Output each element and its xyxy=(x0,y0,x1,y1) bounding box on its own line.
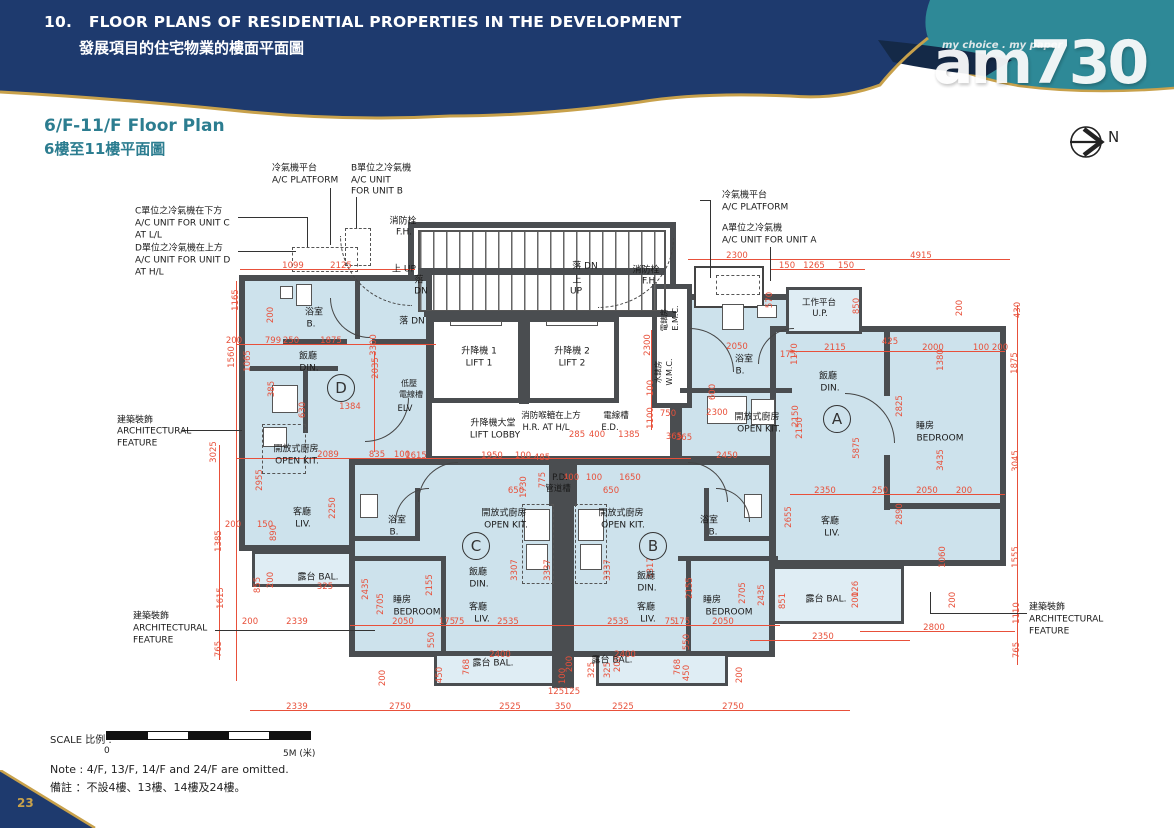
dimension-text: 1385 xyxy=(215,530,224,552)
dimension-text: 200 xyxy=(226,337,242,346)
dimension-text: 1875 xyxy=(1011,352,1020,374)
plan-label: DIN. xyxy=(469,581,488,590)
dimension-text: 350 xyxy=(555,703,571,712)
dimension-text: 150 xyxy=(257,521,273,530)
dimension-text: 430 xyxy=(1014,302,1023,318)
dimension-text: 200 xyxy=(949,592,958,608)
plan-label: 浴室 xyxy=(735,356,753,365)
leader-line xyxy=(700,200,711,201)
dimension-text: 2535 xyxy=(497,618,519,627)
page: 10. FLOOR PLANS OF RESIDENTIAL PROPERTIE… xyxy=(0,0,1174,828)
dimension-text: 2955 xyxy=(256,469,265,491)
scale-bar xyxy=(106,731,311,740)
plan-label: OPEN KIT. xyxy=(601,522,645,531)
plan-label: 建築裝飾 xyxy=(1029,604,1065,613)
dimension-text: 1099 xyxy=(282,262,304,271)
plan-label: 睡房 xyxy=(916,423,934,432)
dimension-text: 3300 xyxy=(370,334,379,356)
plan-label: A/C PLATFORM xyxy=(722,204,788,213)
scale-bar-segment xyxy=(107,732,148,739)
dimension-text: 2525 xyxy=(499,703,521,712)
dimension-text: 450 xyxy=(436,667,445,683)
dimension-line xyxy=(219,445,220,660)
dimension-text: 1950 xyxy=(481,452,503,461)
dimension-text: 2300 xyxy=(726,252,748,261)
dimension-text: 5875 xyxy=(853,437,862,459)
plan-label: LIFT 2 xyxy=(559,360,586,369)
dimension-text: 125 xyxy=(548,688,564,697)
dimension-text: 2300 xyxy=(706,409,728,418)
plan-label: A/C PLATFORM xyxy=(272,177,338,186)
dimension-text: 2435 xyxy=(362,578,371,600)
scale-bar-segment xyxy=(229,732,270,739)
plan-label: 睡房 xyxy=(393,597,411,606)
dimension-text: 765 xyxy=(215,641,224,657)
plan-label: LIV. xyxy=(640,616,656,625)
scale-bar-segment xyxy=(148,732,189,739)
plan-label: 電錶房 xyxy=(660,309,668,332)
plan-label: E.M.C. xyxy=(672,305,680,330)
plan-label: ARCHITECTURAL xyxy=(133,625,207,634)
dimension-text: 200 xyxy=(242,618,258,627)
leader-line xyxy=(356,197,357,228)
wall-segment xyxy=(250,366,338,371)
plan-label: BEDROOM xyxy=(917,435,964,444)
dimension-text: 200 xyxy=(852,592,861,608)
fixture xyxy=(280,286,293,299)
dimension-text: 485 xyxy=(534,454,550,463)
plan-label: 露台 BAL. xyxy=(805,596,846,605)
dimension-text: 2155 xyxy=(686,577,695,599)
plan-label: 建築裝飾 xyxy=(117,417,153,426)
dimension-text: 2050 xyxy=(712,618,734,627)
plan-label: 冷氣機平台 xyxy=(722,192,767,201)
plan-label: 開放式廚房 xyxy=(481,510,526,519)
plan-label: DIN. xyxy=(820,385,839,394)
dimension-line xyxy=(250,710,850,711)
dimension-text: 570 xyxy=(766,292,775,308)
dimension-text: 550 xyxy=(428,632,437,648)
plan-label: F.H. xyxy=(642,278,658,287)
plan-label: 消防栓 xyxy=(389,218,416,227)
dimension-text: 2350 xyxy=(812,633,834,642)
plan-label: 客廳 xyxy=(821,518,839,527)
dimension-text: 750 xyxy=(660,410,676,419)
dimension-text: 3337 xyxy=(604,559,613,581)
dimension-text: 100 xyxy=(586,474,602,483)
plan-label: 飯廳 xyxy=(819,373,837,382)
dimension-text: 325 xyxy=(317,583,333,592)
dimension-text: 550 xyxy=(683,634,692,650)
dimension-text: 2750 xyxy=(389,703,411,712)
scale-start: 0 xyxy=(104,746,110,756)
plan-label: 浴室 xyxy=(305,309,323,318)
dimension-text: 768 xyxy=(463,659,472,675)
dimension-text: 850 xyxy=(853,298,862,314)
plan-label: ARCHITECTURAL xyxy=(117,428,191,437)
dimension-text: 1650 xyxy=(619,474,641,483)
plan-label: 電線槽 xyxy=(603,412,629,421)
dimension-text: 2150 xyxy=(796,417,805,439)
dimension-text: 835 xyxy=(369,451,385,460)
plan-label: 上 UP xyxy=(392,266,416,275)
dimension-text: 2300 xyxy=(644,334,653,356)
plan-label: OPEN KIT. xyxy=(484,522,528,531)
dimension-text: 1100 xyxy=(647,407,656,429)
scale-bar-segment xyxy=(269,732,310,739)
plan-label: FEATURE xyxy=(117,440,157,449)
plan-label: UP xyxy=(570,288,582,297)
leader-line xyxy=(238,251,296,252)
dimension-text: 200 xyxy=(956,487,972,496)
dimension-text: 2339 xyxy=(286,618,308,627)
wall-segment xyxy=(441,560,446,655)
dimension-text: 4915 xyxy=(910,252,932,261)
dimension-text: 768 xyxy=(674,659,683,675)
leader-line xyxy=(770,247,771,281)
plan-label: B單位之冷氣機 xyxy=(351,165,411,174)
dimension-text: 365 xyxy=(666,433,682,442)
plan-label: W.M.C. xyxy=(666,358,674,385)
dimension-text: 200 xyxy=(566,656,575,672)
dimension-text: 200 xyxy=(956,300,965,316)
plan-label: B. xyxy=(708,529,717,538)
dimension-text: 1560 xyxy=(228,346,237,368)
plan-label: LIFT LOBBY xyxy=(470,432,520,441)
dimension-text: 285 xyxy=(569,431,585,440)
dimension-text: 630 xyxy=(299,402,308,418)
dimension-text: 200 xyxy=(736,667,745,683)
page-number: 23 xyxy=(17,796,34,810)
wall-segment xyxy=(678,556,778,561)
dimension-text: 851 xyxy=(779,593,788,609)
plan-label: 消防栓 xyxy=(632,267,659,276)
dimension-text: 2535 xyxy=(607,618,629,627)
dimension-text: 855 xyxy=(254,577,263,593)
dimension-text: 2339 xyxy=(286,703,308,712)
plan-label: 露台 BAL. xyxy=(297,574,338,583)
plan-label: LIV. xyxy=(474,616,490,625)
dimension-text: 2155 xyxy=(426,574,435,596)
wall-segment xyxy=(352,536,420,541)
dimension-text: 75 xyxy=(454,618,465,627)
dimension-text: 425 xyxy=(882,338,898,347)
plan-label: 客廳 xyxy=(637,604,655,613)
plan-label: P.D. xyxy=(552,474,568,483)
leader-line xyxy=(215,630,375,631)
plan-label: 低壓 xyxy=(401,380,417,388)
dimension-text: 1875 xyxy=(320,337,342,346)
unit-badge-d: D xyxy=(327,374,355,402)
dimension-text: 2050 xyxy=(916,487,938,496)
dimension-text: 200 xyxy=(379,670,388,686)
leader-line xyxy=(710,200,711,278)
plan-label: ELV xyxy=(398,405,413,414)
plan-label: 露台 BAL. xyxy=(591,657,632,666)
dimension-text: 2125 xyxy=(330,262,352,271)
plan-label: LIV. xyxy=(824,530,840,539)
plan-label: LIV. xyxy=(295,521,311,530)
fixture xyxy=(450,321,502,326)
dimension-text: 2115 xyxy=(824,344,846,353)
leader-line xyxy=(330,188,331,245)
plan-label: 客廳 xyxy=(469,604,487,613)
fixture xyxy=(296,284,312,306)
wall-segment xyxy=(424,311,676,317)
plan-label: 水錶房 xyxy=(654,361,662,384)
plan-label: 建築裝飾 xyxy=(133,613,169,622)
ac-unit-dashed-box xyxy=(716,275,760,295)
wall-segment xyxy=(349,556,446,561)
dimension-text: 150 xyxy=(779,262,795,271)
dimension-text: 1615 xyxy=(217,587,226,609)
plan-label: DN xyxy=(414,288,428,297)
plan-label: E.D. xyxy=(601,424,618,433)
plan-label: 睡房 xyxy=(703,597,721,606)
plan-label: B. xyxy=(306,321,315,330)
dimension-text: 2050 xyxy=(392,618,414,627)
plan-label: A/C UNIT FOR UNIT A xyxy=(722,237,817,246)
plan-label: 開放式廚房 xyxy=(598,510,643,519)
scale-bar-segment xyxy=(188,732,229,739)
unit-badge-b: B xyxy=(639,532,667,560)
plan-label: A/C UNIT xyxy=(351,177,391,186)
scale-label: SCALE 比例 : xyxy=(50,731,112,746)
leader-line xyxy=(307,217,308,247)
dimension-text: 1384 xyxy=(339,403,361,412)
dimension-text: 1555 xyxy=(1012,546,1021,568)
plan-label: 浴室 xyxy=(388,517,406,526)
plan-label: 飯廳 xyxy=(637,573,655,582)
dimension-text: 2450 xyxy=(716,452,738,461)
dimension-text: 100 xyxy=(973,344,989,353)
plan-label: 飯廳 xyxy=(299,353,317,362)
plan-label: 升降機大堂 xyxy=(470,420,515,429)
dimension-text: 1380 xyxy=(937,349,946,371)
dimension-text: 200 xyxy=(225,521,241,530)
fixture xyxy=(580,544,602,570)
floor-plan: 1099212523004915150126515057085020011651… xyxy=(0,0,1174,828)
plan-label: C單位之冷氣機在下方 xyxy=(135,208,222,217)
unit-badge-c: C xyxy=(462,532,490,560)
dimension-text: 650 xyxy=(603,487,619,496)
plan-label: B. xyxy=(735,368,744,377)
plan-label: 電線槽 xyxy=(399,391,423,399)
plan-label: H.R. AT H/L xyxy=(523,424,570,433)
dimension-text: 1165 xyxy=(232,289,241,311)
plan-label: DIN. xyxy=(637,585,656,594)
plan-label: OPEN KIT. xyxy=(737,426,781,435)
dimension-text: 2035 xyxy=(372,357,381,379)
dimension-text: 1615 xyxy=(405,452,427,461)
leader-line xyxy=(930,592,931,614)
plan-label: BEDROOM xyxy=(394,609,441,618)
plan-label: 露台 BAL. xyxy=(472,660,513,669)
dimension-text: 250 xyxy=(872,487,888,496)
plan-label: FOR UNIT B xyxy=(351,188,403,197)
plan-label: B. xyxy=(389,529,398,538)
dimension-text: 200 xyxy=(992,344,1008,353)
plan-label: AT H/L xyxy=(135,269,164,278)
plan-label: 升降機 1 xyxy=(461,348,497,357)
plan-label: BEDROOM xyxy=(706,609,753,618)
dimension-text: 450 xyxy=(683,665,692,681)
dimension-text: 2655 xyxy=(785,506,794,528)
dimension-text: 1265 xyxy=(803,262,825,271)
plan-label: 上 xyxy=(572,277,581,286)
fixture xyxy=(524,509,550,541)
plan-label: A單位之冷氣機 xyxy=(722,225,782,234)
plan-label: U.P. xyxy=(812,310,827,319)
dimension-text: 2050 xyxy=(726,343,748,352)
plan-label: LIFT 1 xyxy=(466,360,493,369)
dimension-text: 2825 xyxy=(896,395,905,417)
plan-label: 浴室 xyxy=(700,517,718,526)
dimension-text: 765 xyxy=(1013,642,1022,658)
dimension-text: 1730 xyxy=(520,476,529,498)
plan-label: 冷氣機平台 xyxy=(272,165,317,174)
dimension-text: 3307 xyxy=(511,559,520,581)
dimension-text: 385 xyxy=(268,381,277,397)
dimension-text: 2750 xyxy=(722,703,744,712)
plan-label: FEATURE xyxy=(1029,628,1069,637)
plan-label: DIN. xyxy=(299,365,318,374)
dimension-text: 250 xyxy=(283,337,299,346)
dimension-text: 3045 xyxy=(1012,450,1021,472)
fixture xyxy=(360,494,378,518)
scale-end: 5M (米) xyxy=(283,746,315,759)
dimension-text: 200 xyxy=(267,572,276,588)
dimension-text: 2800 xyxy=(923,624,945,633)
dimension-text: 100 xyxy=(515,452,531,461)
dimension-text: 2250 xyxy=(329,497,338,519)
plan-label: 消防喉轆在上方 xyxy=(521,412,581,421)
plan-label: F.H. xyxy=(396,229,412,238)
plan-label: 開放式廚房 xyxy=(734,414,779,423)
plan-label: 飯廳 xyxy=(469,569,487,578)
plan-label: 工作平台 xyxy=(802,299,836,308)
wall-segment xyxy=(680,388,792,393)
fixture xyxy=(546,321,598,326)
corner-tear xyxy=(0,770,100,828)
plan-label: 落 DN xyxy=(399,318,425,327)
dimension-text: 125 xyxy=(564,688,580,697)
dimension-text: 150 xyxy=(838,262,854,271)
plan-label: A/C UNIT FOR UNIT C xyxy=(135,220,230,229)
plan-label: FEATURE xyxy=(133,637,173,646)
plan-label: D單位之冷氣機在上方 xyxy=(135,245,223,254)
plan-label: AT L/L xyxy=(135,232,162,241)
dimension-text: 2705 xyxy=(739,582,748,604)
plan-label: 落 DN xyxy=(572,263,598,272)
dimension-text: 2525 xyxy=(612,703,634,712)
dimension-text: 2435 xyxy=(758,584,767,606)
plan-label: 落 xyxy=(414,277,423,286)
dimension-text: 1385 xyxy=(618,431,640,440)
dimension-text: 2350 xyxy=(814,487,836,496)
dimension-text: 200 xyxy=(267,307,276,323)
dimension-text: 799 xyxy=(265,337,281,346)
plan-label: 升降機 2 xyxy=(554,348,590,357)
dimension-text: 3435 xyxy=(937,449,946,471)
plan-label: 客廳 xyxy=(293,509,311,518)
leader-line xyxy=(238,217,308,218)
dimension-text: 1065 xyxy=(244,350,253,372)
plan-label: ARCHITECTURAL xyxy=(1029,616,1103,625)
dimension-text: 2705 xyxy=(377,593,386,615)
plan-label: A/C UNIT FOR UNIT D xyxy=(135,257,230,266)
wall-segment xyxy=(519,316,529,404)
fixture xyxy=(722,304,744,330)
dimension-text: 600 xyxy=(709,384,718,400)
dimension-text: 2890 xyxy=(896,503,905,525)
dimension-text: 175 xyxy=(674,618,690,627)
plan-label: 開放式廚房 xyxy=(273,446,318,455)
unit-badge-a: A xyxy=(823,405,851,433)
wall-segment xyxy=(884,455,890,510)
dimension-text: 3337 xyxy=(544,559,553,581)
dimension-text: 2089 xyxy=(317,451,339,460)
dimension-text: 175 xyxy=(780,351,796,360)
dimension-text: 1110 xyxy=(1013,602,1022,624)
plan-label: OPEN KIT. xyxy=(275,458,319,467)
plan-label: 管道槽 xyxy=(545,485,571,494)
dimension-text: 3025 xyxy=(210,441,219,463)
dimension-text: 1060 xyxy=(939,546,948,568)
